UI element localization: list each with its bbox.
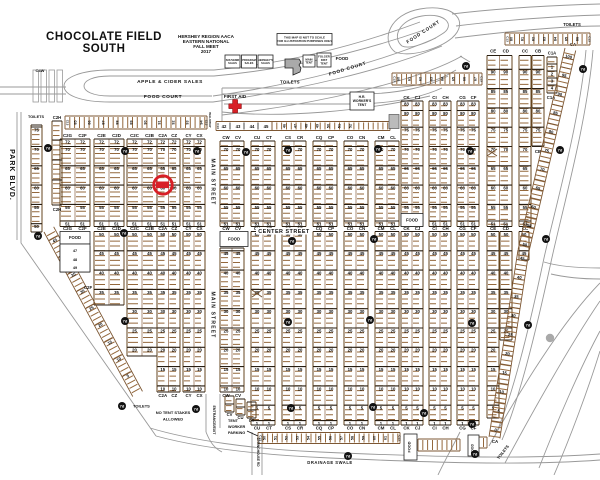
svg-text:35: 35 — [443, 290, 448, 295]
svg-text:50: 50 — [391, 232, 396, 237]
svg-text:55: 55 — [298, 205, 303, 210]
svg-text:CX: CX — [196, 133, 202, 138]
svg-text:CL: CL — [390, 135, 396, 140]
svg-text:60: 60 — [286, 186, 291, 191]
svg-text:48: 48 — [304, 124, 308, 128]
svg-text:25: 25 — [329, 328, 334, 333]
svg-text:35: 35 — [132, 290, 137, 295]
svg-text:C2C: C2C — [130, 226, 140, 231]
svg-text:CJ: CJ — [415, 426, 421, 431]
svg-text:7d: 7d — [290, 239, 295, 244]
svg-text:75: 75 — [415, 128, 420, 133]
svg-text:SALES: SALES — [228, 61, 237, 65]
svg-text:35: 35 — [432, 290, 437, 295]
svg-text:56: 56 — [328, 436, 332, 440]
svg-text:75: 75 — [471, 128, 476, 133]
svg-text:40: 40 — [267, 271, 272, 276]
svg-text:40: 40 — [197, 271, 202, 276]
svg-text:70: 70 — [224, 147, 229, 152]
svg-text:50: 50 — [132, 232, 137, 237]
svg-text:WALKWAY: WALKWAY — [208, 112, 212, 127]
svg-text:55: 55 — [443, 205, 448, 210]
svg-text:70: 70 — [360, 147, 365, 152]
svg-text:50: 50 — [471, 232, 476, 237]
svg-text:51: 51 — [273, 436, 277, 440]
svg-text:60: 60 — [443, 186, 448, 191]
svg-text:20: 20 — [267, 348, 272, 353]
svg-text:CI: CI — [432, 95, 436, 100]
svg-text:CH: CH — [442, 226, 448, 231]
svg-text:20: 20 — [432, 348, 437, 353]
svg-text:C2D: C2D — [112, 133, 121, 138]
svg-text:15: 15 — [255, 367, 260, 372]
svg-text:35: 35 — [360, 290, 365, 295]
svg-text:C2G: C2G — [63, 226, 73, 231]
svg-text:55: 55 — [415, 205, 420, 210]
svg-text:70: 70 — [147, 147, 152, 152]
svg-text:60: 60 — [147, 186, 152, 191]
svg-text:60: 60 — [132, 186, 137, 191]
svg-text:C13: C13 — [66, 120, 70, 126]
svg-text:65: 65 — [160, 166, 165, 171]
svg-text:CZ: CZ — [171, 133, 177, 138]
svg-text:CK: CK — [403, 95, 410, 100]
svg-text:25: 25 — [267, 328, 272, 333]
svg-text:70: 70 — [65, 147, 70, 152]
svg-text:50: 50 — [491, 232, 496, 237]
svg-text:35: 35 — [460, 290, 465, 295]
svg-text:15: 15 — [197, 367, 202, 372]
svg-text:25: 25 — [379, 328, 384, 333]
svg-text:55: 55 — [460, 205, 465, 210]
svg-text:49: 49 — [73, 266, 77, 270]
svg-text:52: 52 — [348, 124, 352, 128]
svg-text:CY: CY — [185, 393, 191, 398]
svg-text:65: 65 — [443, 166, 448, 171]
svg-text:60: 60 — [65, 186, 70, 191]
svg-text:55: 55 — [404, 205, 409, 210]
svg-text:61: 61 — [407, 77, 411, 81]
svg-text:C2A: C2A — [158, 133, 168, 138]
svg-text:70: 70 — [114, 147, 119, 152]
svg-text:30: 30 — [379, 309, 384, 314]
svg-text:40: 40 — [114, 271, 119, 276]
svg-text:65: 65 — [114, 166, 119, 171]
svg-text:55: 55 — [80, 205, 85, 210]
svg-text:35: 35 — [379, 290, 384, 295]
svg-text:60: 60 — [186, 186, 191, 191]
svg-text:35: 35 — [160, 290, 165, 295]
svg-text:40: 40 — [348, 271, 353, 276]
svg-text:45: 45 — [504, 251, 509, 256]
svg-text:83: 83 — [542, 37, 546, 41]
svg-text:40: 40 — [317, 271, 322, 276]
svg-text:65: 65 — [432, 166, 437, 171]
svg-text:89: 89 — [129, 120, 133, 124]
svg-text:10: 10 — [172, 386, 177, 391]
svg-text:55: 55 — [34, 205, 39, 210]
svg-text:C2F: C2F — [78, 133, 87, 138]
svg-text:20: 20 — [379, 348, 384, 353]
svg-text:25: 25 — [186, 328, 191, 333]
svg-text:SPRINGHOUSE RD: SPRINGHOUSE RD — [256, 437, 260, 467]
svg-text:20: 20 — [186, 348, 191, 353]
svg-text:80: 80 — [404, 111, 409, 116]
svg-text:CR: CR — [297, 135, 304, 140]
svg-text:CU: CU — [254, 135, 260, 140]
svg-text:35: 35 — [404, 290, 409, 295]
svg-text:25: 25 — [197, 328, 202, 333]
svg-text:7d: 7d — [289, 406, 294, 411]
svg-text:25: 25 — [317, 328, 322, 333]
svg-text:35: 35 — [415, 290, 420, 295]
svg-text:25: 25 — [147, 328, 152, 333]
svg-text:65: 65 — [298, 166, 303, 171]
svg-text:55: 55 — [160, 205, 165, 210]
svg-text:50: 50 — [160, 232, 165, 237]
svg-text:C13: C13 — [205, 120, 209, 126]
svg-text:65: 65 — [471, 166, 476, 171]
svg-text:35: 35 — [172, 290, 177, 295]
svg-text:70: 70 — [391, 147, 396, 152]
svg-text:60: 60 — [379, 186, 384, 191]
svg-text:65: 65 — [451, 77, 455, 81]
svg-text:72: 72 — [186, 139, 191, 144]
svg-text:45: 45 — [432, 251, 437, 256]
svg-text:90: 90 — [523, 70, 528, 75]
svg-text:40: 40 — [186, 271, 191, 276]
svg-text:CN: CN — [359, 135, 365, 140]
svg-text:25: 25 — [236, 328, 241, 333]
svg-text:25: 25 — [132, 328, 137, 333]
svg-text:75: 75 — [491, 128, 496, 133]
svg-text:35: 35 — [491, 290, 496, 295]
svg-text:7d: 7d — [36, 234, 41, 239]
svg-text:40: 40 — [391, 271, 396, 276]
svg-text:65: 65 — [317, 166, 322, 171]
svg-text:65: 65 — [523, 166, 528, 171]
svg-text:80: 80 — [523, 108, 528, 113]
svg-text:55: 55 — [197, 205, 202, 210]
svg-text:75: 75 — [34, 127, 39, 132]
svg-text:35: 35 — [471, 290, 476, 295]
svg-text:40: 40 — [255, 271, 260, 276]
svg-text:70: 70 — [236, 147, 241, 152]
svg-text:TENT: TENT — [305, 61, 313, 65]
svg-text:60: 60 — [197, 186, 202, 191]
svg-text:50: 50 — [360, 232, 365, 237]
svg-text:65: 65 — [329, 166, 334, 171]
svg-text:60: 60 — [34, 186, 39, 191]
svg-text:35: 35 — [186, 290, 191, 295]
svg-text:10: 10 — [415, 386, 420, 391]
svg-text:45: 45 — [160, 251, 165, 256]
svg-text:65: 65 — [224, 166, 229, 171]
svg-text:40: 40 — [404, 271, 409, 276]
svg-text:60: 60 — [224, 186, 229, 191]
svg-text:50: 50 — [415, 232, 420, 237]
svg-text:40: 40 — [132, 271, 137, 276]
svg-text:CE: CE — [490, 49, 496, 54]
svg-text:70: 70 — [523, 147, 528, 152]
svg-text:C2A: C2A — [158, 226, 168, 231]
svg-text:15: 15 — [404, 367, 409, 372]
svg-text:59: 59 — [361, 436, 365, 440]
svg-text:75: 75 — [432, 128, 437, 133]
svg-text:60: 60 — [360, 186, 365, 191]
svg-text:10: 10 — [186, 386, 191, 391]
svg-text:15: 15 — [329, 367, 334, 372]
svg-text:40: 40 — [236, 271, 241, 276]
svg-text:30: 30 — [404, 309, 409, 314]
svg-text:7d: 7d — [123, 319, 128, 324]
svg-text:20: 20 — [443, 348, 448, 353]
svg-text:10: 10 — [471, 386, 476, 391]
svg-text:60: 60 — [255, 186, 260, 191]
svg-text:CV: CV — [235, 226, 241, 231]
svg-text:CD: CD — [503, 226, 509, 231]
svg-text:C13: C13 — [398, 435, 402, 441]
svg-text:CH: CH — [442, 95, 448, 100]
svg-text:C2H: C2H — [53, 207, 61, 212]
svg-text:60: 60 — [391, 186, 396, 191]
svg-text:10: 10 — [491, 386, 496, 391]
svg-text:SALES: SALES — [261, 61, 270, 65]
svg-text:83: 83 — [404, 101, 409, 106]
svg-text:40: 40 — [379, 271, 384, 276]
svg-text:30: 30 — [460, 309, 465, 314]
svg-text:C2B: C2B — [145, 133, 154, 138]
svg-text:40: 40 — [432, 271, 437, 276]
svg-text:70: 70 — [460, 147, 465, 152]
svg-text:65: 65 — [186, 166, 191, 171]
svg-text:45: 45 — [348, 251, 353, 256]
svg-text:CG: CG — [459, 226, 466, 231]
svg-text:50: 50 — [147, 232, 152, 237]
svg-text:PARKING: PARKING — [228, 431, 245, 435]
svg-text:CS: CS — [285, 426, 291, 431]
svg-text:C2E: C2E — [97, 133, 106, 138]
svg-text:CD: CD — [503, 49, 509, 54]
svg-text:55: 55 — [224, 205, 229, 210]
svg-text:TENT: TENT — [228, 419, 239, 423]
svg-text:65: 65 — [379, 166, 384, 171]
svg-text:2017: 2017 — [201, 49, 212, 54]
svg-text:7d: 7d — [194, 407, 199, 412]
svg-text:7d: 7d — [346, 454, 351, 459]
svg-text:72: 72 — [147, 139, 152, 144]
svg-text:65: 65 — [255, 166, 260, 171]
svg-text:65: 65 — [80, 166, 85, 171]
svg-text:70: 70 — [503, 147, 508, 152]
svg-text:45: 45 — [443, 251, 448, 256]
svg-text:CR: CR — [297, 426, 304, 431]
svg-text:30: 30 — [329, 309, 334, 314]
svg-text:7d: 7d — [372, 237, 377, 242]
svg-text:70: 70 — [267, 147, 272, 152]
svg-text:45: 45 — [197, 251, 202, 256]
svg-text:30: 30 — [317, 309, 322, 314]
svg-text:30: 30 — [391, 309, 396, 314]
svg-text:PARK BLVD.: PARK BLVD. — [8, 149, 15, 201]
svg-text:25: 25 — [460, 328, 465, 333]
svg-text:7d: 7d — [123, 149, 128, 154]
svg-text:85: 85 — [536, 89, 541, 94]
svg-text:15: 15 — [379, 367, 384, 372]
svg-text:DRAINAGE SWALE: DRAINAGE SWALE — [307, 460, 352, 465]
svg-text:TENT: TENT — [358, 103, 368, 107]
svg-text:C1A: C1A — [548, 51, 556, 56]
svg-text:83: 83 — [471, 101, 476, 106]
svg-text:10: 10 — [267, 386, 272, 391]
svg-text:20: 20 — [160, 348, 165, 353]
svg-text:C13: C13 — [506, 36, 510, 42]
svg-text:CT: CT — [266, 135, 272, 140]
svg-text:75: 75 — [460, 128, 465, 133]
svg-text:80: 80 — [536, 108, 541, 113]
svg-text:65: 65 — [404, 166, 409, 171]
svg-text:65: 65 — [147, 166, 152, 171]
svg-text:55: 55 — [317, 205, 322, 210]
svg-text:40: 40 — [147, 271, 152, 276]
svg-text:50: 50 — [432, 232, 437, 237]
svg-text:CU: CU — [237, 415, 243, 420]
svg-text:CA: CA — [570, 42, 577, 47]
svg-text:65: 65 — [172, 166, 177, 171]
svg-text:46: 46 — [282, 124, 286, 128]
svg-text:45: 45 — [360, 251, 365, 256]
svg-text:20: 20 — [471, 348, 476, 353]
svg-text:45: 45 — [491, 251, 496, 256]
svg-text:45: 45 — [147, 251, 152, 256]
svg-text:C13: C13 — [588, 36, 592, 42]
svg-text:75: 75 — [443, 128, 448, 133]
svg-text:92: 92 — [171, 120, 175, 124]
svg-text:15: 15 — [443, 367, 448, 372]
svg-text:72: 72 — [65, 139, 70, 144]
svg-text:80: 80 — [415, 111, 420, 116]
svg-text:62: 62 — [418, 77, 422, 81]
svg-text:50: 50 — [404, 232, 409, 237]
svg-text:88: 88 — [115, 120, 119, 124]
svg-text:7d: 7d — [470, 422, 475, 427]
svg-text:55: 55 — [65, 205, 70, 210]
svg-text:CV: CV — [235, 393, 241, 398]
svg-text:C2A: C2A — [158, 393, 168, 398]
svg-text:CN: CN — [359, 226, 365, 231]
svg-text:35: 35 — [348, 290, 353, 295]
svg-text:30: 30 — [432, 309, 437, 314]
svg-text:FOOD: FOOD — [406, 218, 418, 223]
svg-text:55: 55 — [267, 205, 272, 210]
svg-text:75: 75 — [404, 128, 409, 133]
svg-text:10: 10 — [197, 386, 202, 391]
svg-text:50: 50 — [379, 232, 384, 237]
svg-text:75: 75 — [503, 128, 508, 133]
svg-text:CT: CT — [266, 426, 272, 431]
svg-text:CJ: CJ — [415, 95, 421, 100]
svg-text:65: 65 — [34, 166, 39, 171]
svg-text:C2D: C2D — [112, 226, 121, 231]
svg-text:20: 20 — [348, 348, 353, 353]
svg-text:FOOD: FOOD — [408, 441, 412, 452]
svg-text:30: 30 — [224, 309, 229, 314]
svg-text:CX: CX — [196, 393, 202, 398]
svg-text:CO: CO — [347, 226, 354, 231]
svg-text:FOOD: FOOD — [228, 237, 240, 242]
svg-text:51: 51 — [337, 124, 341, 128]
svg-text:60: 60 — [236, 186, 241, 191]
svg-text:CU: CU — [254, 426, 260, 431]
svg-text:15: 15 — [491, 367, 496, 372]
svg-text:ALLOWED: ALLOWED — [163, 417, 183, 422]
svg-text:40: 40 — [99, 271, 104, 276]
svg-text:90: 90 — [536, 70, 541, 75]
svg-text:70: 70 — [255, 147, 260, 152]
svg-text:30: 30 — [443, 309, 448, 314]
svg-text:15: 15 — [298, 367, 303, 372]
svg-text:7d: 7d — [422, 411, 427, 416]
svg-text:35: 35 — [267, 290, 272, 295]
svg-text:60: 60 — [267, 186, 272, 191]
svg-text:70: 70 — [99, 147, 104, 152]
svg-text:60: 60 — [491, 186, 496, 191]
svg-text:45: 45 — [186, 251, 191, 256]
svg-text:ENTRANCE/EXIT: ENTRANCE/EXIT — [212, 406, 216, 436]
svg-text:45: 45 — [255, 251, 260, 256]
svg-text:35: 35 — [317, 290, 322, 295]
svg-text:15: 15 — [224, 367, 229, 372]
svg-text:20: 20 — [415, 348, 420, 353]
svg-text:30: 30 — [147, 309, 152, 314]
svg-text:10: 10 — [443, 386, 448, 391]
svg-text:30: 30 — [491, 309, 496, 314]
svg-text:80: 80 — [471, 111, 476, 116]
svg-text:45: 45 — [460, 251, 465, 256]
svg-text:40: 40 — [298, 271, 303, 276]
svg-text:70: 70 — [329, 147, 334, 152]
svg-text:35: 35 — [391, 290, 396, 295]
svg-text:65: 65 — [267, 166, 272, 171]
svg-text:35: 35 — [329, 290, 334, 295]
svg-text:55: 55 — [255, 205, 260, 210]
svg-text:CV: CV — [235, 135, 241, 140]
svg-text:85: 85 — [503, 89, 508, 94]
svg-text:35: 35 — [298, 290, 303, 295]
svg-text:CM: CM — [378, 135, 385, 140]
svg-text:10: 10 — [255, 386, 260, 391]
svg-text:55: 55 — [147, 205, 152, 210]
svg-text:58: 58 — [350, 436, 354, 440]
svg-text:MAIN STREET: MAIN STREET — [210, 158, 216, 205]
svg-text:40: 40 — [415, 271, 420, 276]
svg-text:72: 72 — [197, 139, 202, 144]
svg-text:55: 55 — [186, 205, 191, 210]
svg-text:80: 80 — [491, 108, 496, 113]
svg-text:20: 20 — [236, 348, 241, 353]
svg-text:70: 70 — [404, 147, 409, 152]
svg-text:CW: CW — [222, 135, 230, 140]
svg-text:47: 47 — [293, 124, 297, 128]
svg-text:15: 15 — [471, 367, 476, 372]
svg-text:SALES: SALES — [245, 61, 254, 65]
svg-text:70: 70 — [186, 147, 191, 152]
svg-text:60: 60 — [432, 186, 437, 191]
svg-text:53: 53 — [295, 436, 299, 440]
svg-text:CV: CV — [227, 412, 233, 417]
svg-text:50: 50 — [34, 224, 39, 229]
svg-text:30: 30 — [298, 309, 303, 314]
